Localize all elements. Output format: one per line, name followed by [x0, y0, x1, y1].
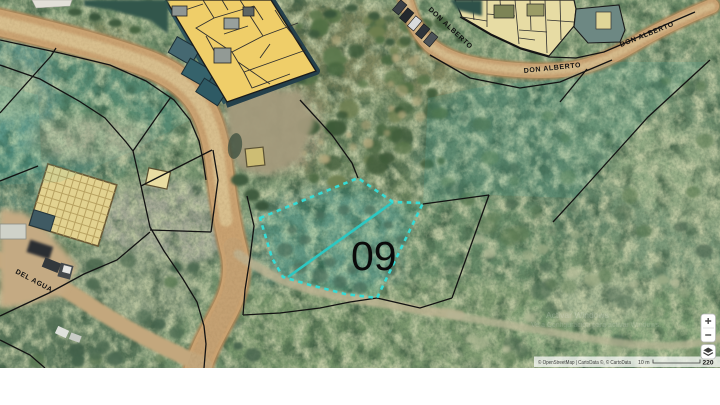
svg-text:10 m: 10 m [638, 360, 650, 366]
svg-text:09: 09 [351, 233, 397, 279]
svg-text:© OpenStreetMap | CartoData ©,: © OpenStreetMap | CartoData ©, © CartoDa… [538, 359, 631, 366]
svg-text:Ve a Configuración para activa: Ve a Configuración para activar Windows. [531, 322, 661, 329]
svg-text:220: 220 [703, 360, 714, 367]
svg-text:Activar Windows: Activar Windows [546, 310, 609, 320]
